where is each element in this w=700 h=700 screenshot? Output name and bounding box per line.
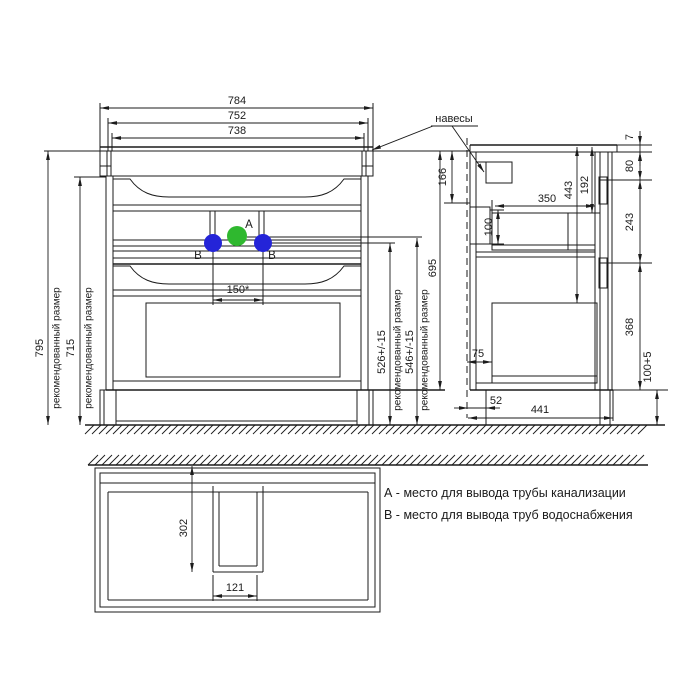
dim-52: 52 [490, 395, 502, 407]
legend-line-b: В - место для вывода труб водоснабжения [384, 508, 633, 522]
dim-243: 243 [624, 213, 636, 231]
dim-192: 192 [579, 176, 591, 194]
dim-height-715: 715 [65, 339, 77, 357]
dim-width-784: 784 [228, 95, 246, 107]
dim-height-695: 695 [427, 259, 439, 277]
dim-width-752: 752 [228, 110, 246, 122]
dim-121: 121 [226, 582, 244, 594]
technical-drawing-page: 784 752 738 навесы 795 рекомендованный р… [0, 0, 700, 700]
dim-7: 7 [624, 134, 636, 140]
point-b-left-marker [204, 234, 222, 252]
dim-height-546: 546+/-15 [404, 330, 416, 374]
note-recommended-2: рекомендованный размер [84, 287, 95, 409]
point-a-label: A [245, 219, 253, 231]
dim-100-5: 100+5 [642, 352, 654, 383]
note-recommended-4: рекомендованный размер [420, 289, 431, 411]
dim-441: 441 [531, 404, 549, 416]
note-recommended-3: рекомендованный размер [393, 289, 404, 411]
dim-80: 80 [624, 160, 636, 172]
dim-350: 350 [538, 193, 556, 205]
dim-height-526: 526+/-15 [376, 330, 388, 374]
point-b-right-label: B [268, 250, 276, 262]
drawing-linework [44, 103, 668, 612]
dim-302: 302 [178, 519, 190, 537]
legend-line-a: А - место для вывода трубы канализации [384, 486, 626, 500]
point-b-left-label: B [194, 250, 202, 262]
dim-443: 443 [563, 181, 575, 199]
technical-drawing: 784 752 738 навесы 795 рекомендованный р… [0, 0, 700, 700]
note-recommended-1: рекомендованный размер [52, 287, 63, 409]
hangers-label: навесы [435, 113, 473, 125]
dim-pipe-spacing-150: 150* [227, 284, 250, 296]
dim-width-738: 738 [228, 125, 246, 137]
dim-166: 166 [437, 168, 449, 186]
dim-100: 100 [483, 218, 495, 236]
point-a-marker [227, 226, 247, 246]
dim-368: 368 [624, 318, 636, 336]
dim-height-795: 795 [34, 339, 46, 357]
dim-75: 75 [472, 348, 484, 360]
